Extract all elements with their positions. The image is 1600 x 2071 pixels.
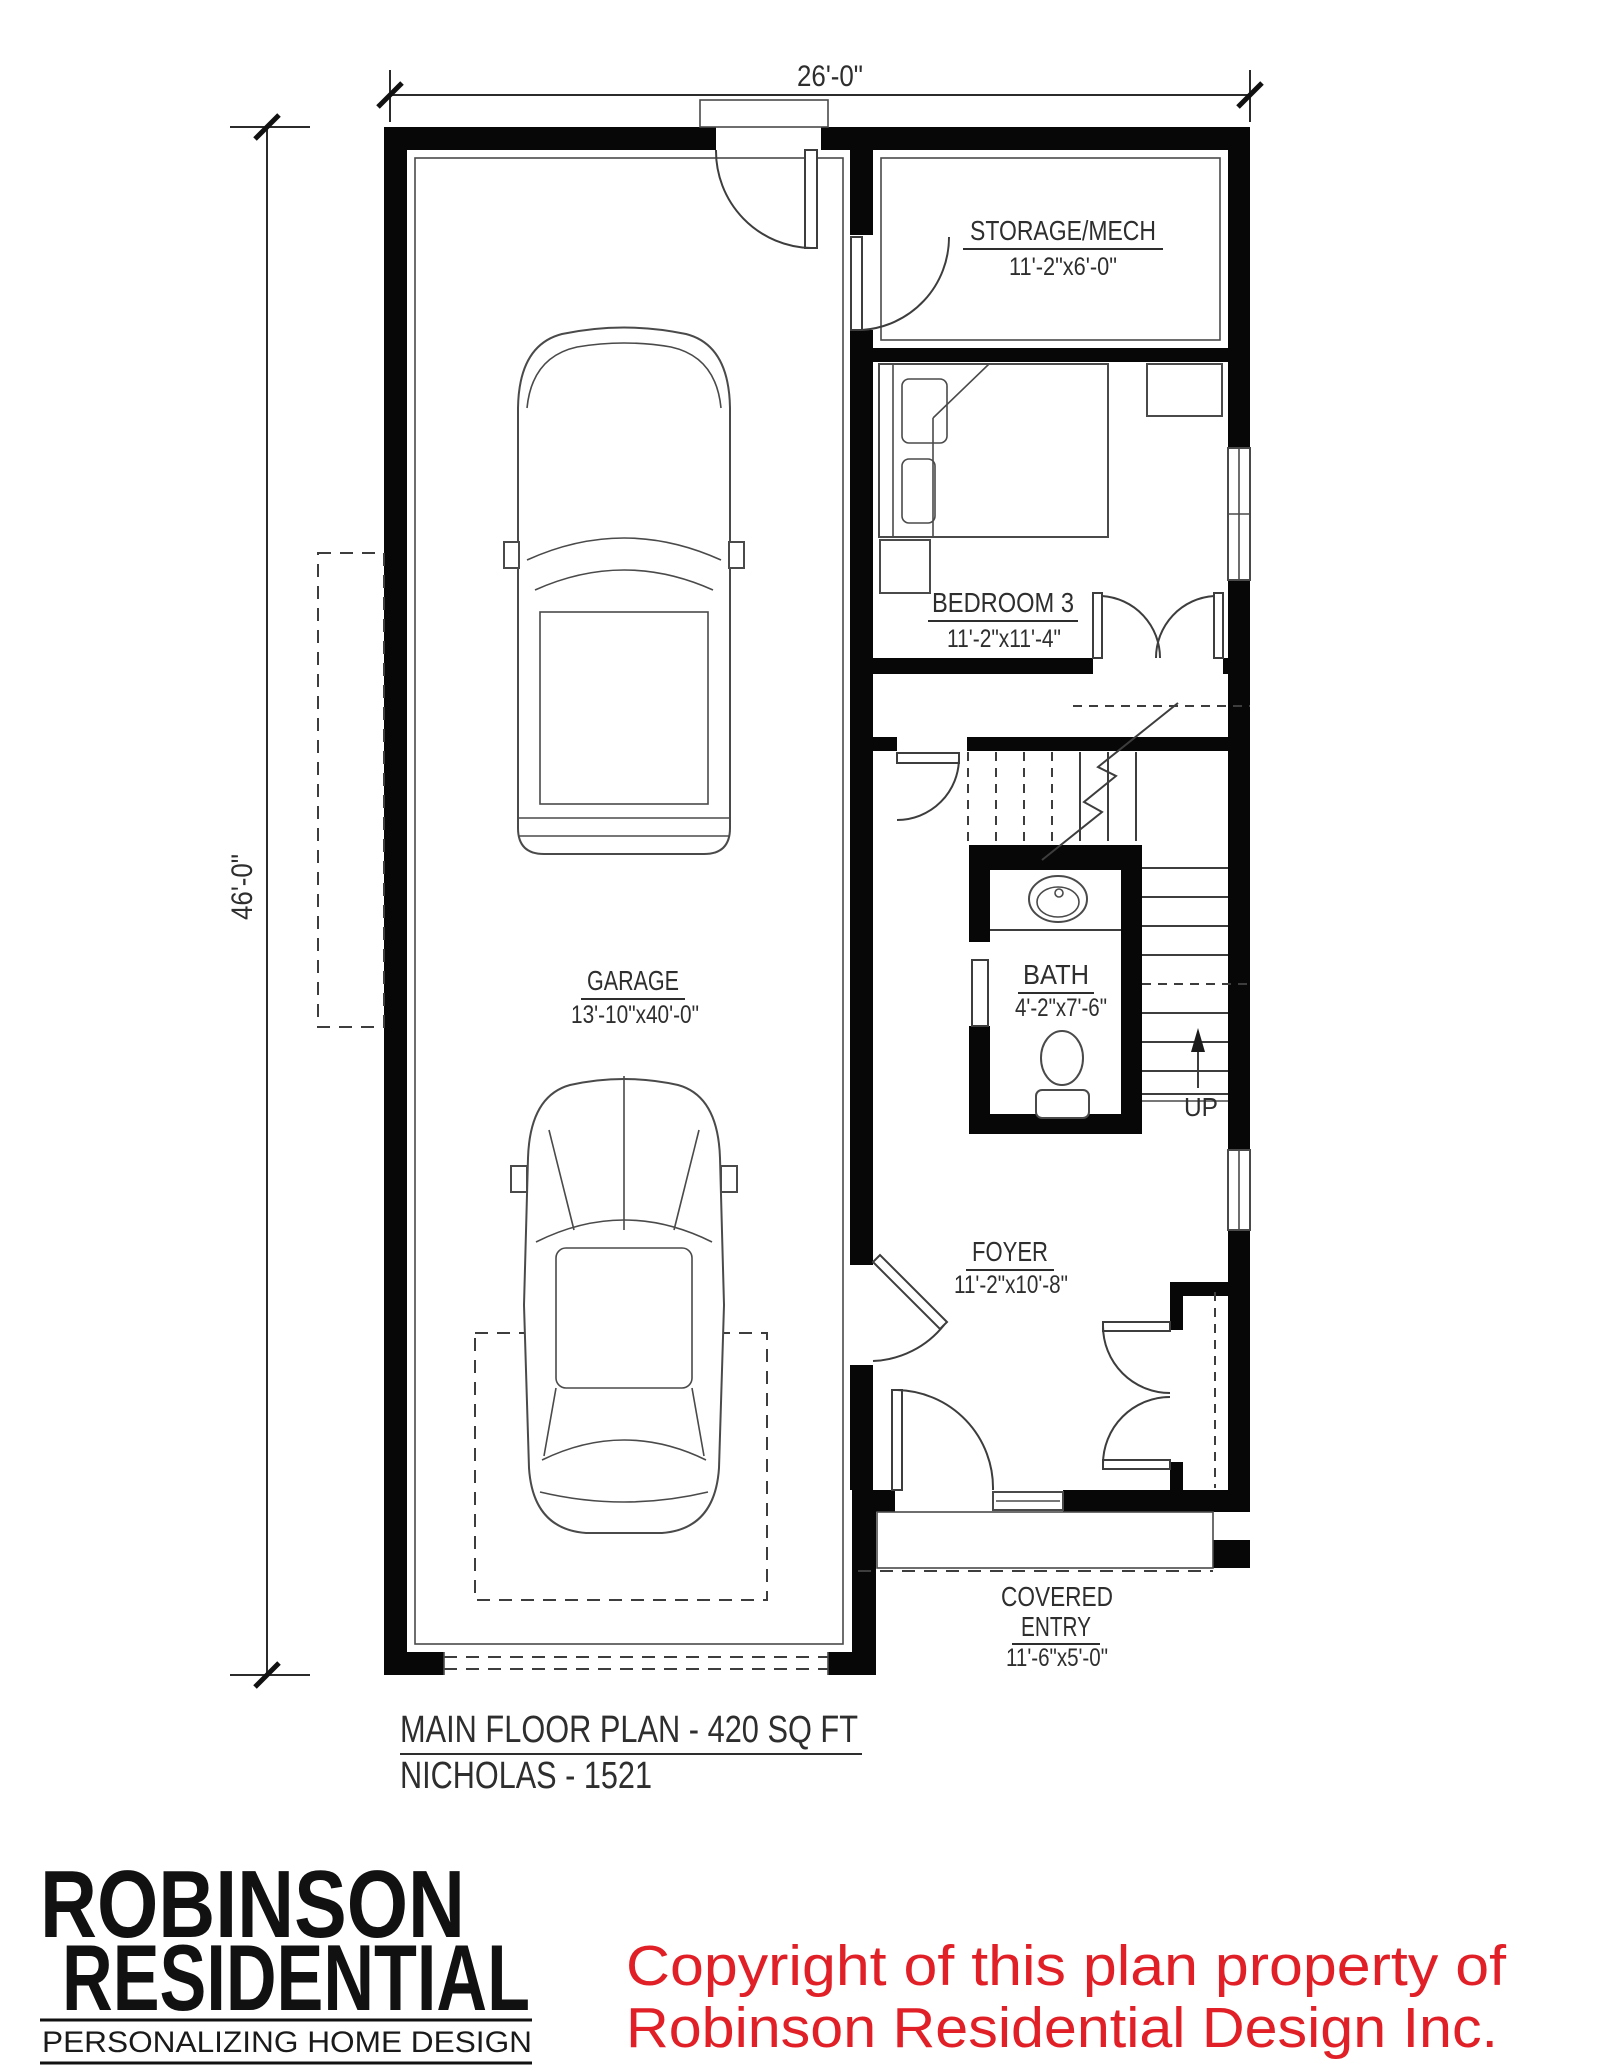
- storage-mech-size: 11'-2"x6'-0": [1009, 253, 1117, 281]
- left-dimension: 46'-0": [226, 115, 310, 1687]
- copyright-line1: Copyright of this plan property of: [626, 1934, 1506, 1998]
- door-swing-garage-rear: [716, 150, 811, 248]
- door-swing-bedroom-right: [1156, 596, 1214, 658]
- door-leaf-bedroom-right: [1214, 593, 1223, 658]
- rear-door-step: [700, 100, 828, 127]
- foyer-size: 11'-2"x10'-8": [954, 1271, 1068, 1299]
- wall-hall-north-a: [873, 737, 897, 751]
- floor-plan-drawing: 26'-0" 46'-0": [0, 0, 1600, 2071]
- wall-central-upper: [850, 150, 873, 235]
- truck-mirror: [504, 542, 519, 568]
- door-swing-front-entry: [897, 1390, 993, 1490]
- cantilever-dashed-outline: [318, 553, 384, 1027]
- stairs-up-label: UP: [1184, 1092, 1218, 1122]
- porch-slab-outline: [877, 1512, 1213, 1568]
- door-leaf-garage-rear: [805, 150, 817, 248]
- logo-line2: RESIDENTIAL: [62, 1925, 530, 2030]
- bath-label: BATH: [1023, 959, 1089, 990]
- plan-name: NICHOLAS - 1521: [400, 1755, 652, 1797]
- wall-storage-south: [873, 348, 1228, 362]
- copyright-line2: Robinson Residential Design Inc.: [626, 1996, 1498, 2060]
- door-swing-closet-bottom: [1103, 1397, 1170, 1464]
- wall-closet-stub-lower: [1170, 1462, 1183, 1490]
- wall-top-right: [821, 127, 1250, 150]
- bedroom-furniture: [879, 364, 1222, 593]
- wall-foyer-south-a: [852, 1490, 895, 1512]
- door-swing-hall: [897, 758, 959, 820]
- wall-right-upper: [1228, 127, 1250, 448]
- car-mirror: [721, 1166, 737, 1192]
- garage-label: GARAGE: [587, 965, 679, 996]
- wall-closet-stub-upper: [1170, 1287, 1183, 1330]
- door-leaf-closet-bottom: [1103, 1460, 1170, 1469]
- wall-central-middle: [850, 330, 873, 1265]
- left-dimension-label: 46'-0": [226, 854, 259, 920]
- wall-bath-east: [1121, 845, 1142, 1134]
- wall-right-lower: [1228, 1230, 1250, 1490]
- door-leaf-bath: [972, 960, 988, 1026]
- door-leaf-hall: [897, 753, 959, 763]
- door-leaf-front-entry: [892, 1390, 902, 1490]
- bed: [879, 364, 1108, 537]
- porch-corner-post: [1213, 1540, 1250, 1568]
- wall-left: [384, 127, 407, 1675]
- door-swing-storage: [862, 237, 949, 330]
- robinson-residential-logo: ROBINSON RESIDENTIAL PERSONALIZING HOME …: [40, 1851, 532, 2063]
- dresser: [1147, 364, 1222, 416]
- foyer-label: FOYER: [972, 1236, 1048, 1267]
- bath-size: 4'-2"x7'-6": [1015, 994, 1107, 1022]
- stair-break-line: [1042, 703, 1178, 860]
- truck-body: [518, 328, 730, 855]
- floor-plan-page: 26'-0" 46'-0": [0, 0, 1600, 2071]
- garage-size: 13'-10"x40'-0": [571, 1001, 699, 1029]
- covered-entry-label-line1: COVERED: [1001, 1581, 1113, 1612]
- wall-top-left: [384, 127, 716, 150]
- drawing-title: MAIN FLOOR PLAN - 420 SQ FT NICHOLAS - 1…: [400, 1709, 862, 1797]
- wall-hall-north-b: [967, 737, 1250, 751]
- car: [511, 1076, 737, 1533]
- bedroom3-size: 11'-2"x11'-4": [947, 625, 1061, 653]
- truck-mirror: [729, 542, 744, 568]
- car-mirror: [511, 1166, 527, 1192]
- logo-tagline: PERSONALIZING HOME DESIGN: [42, 2026, 532, 2059]
- door-leaf-closet-top: [1103, 1322, 1170, 1331]
- foyer-elements: [858, 1292, 1215, 1571]
- truck: [504, 328, 744, 855]
- wall-foyer-south-b: [1063, 1490, 1250, 1512]
- top-dimension: 26'-0": [378, 60, 1262, 122]
- door-leaf-storage: [851, 237, 862, 330]
- door-swing-closet-top: [1103, 1326, 1170, 1393]
- door-leaf-bedroom-left: [1093, 593, 1102, 658]
- wall-garage-bottom-left: [384, 1652, 444, 1675]
- plan-title: MAIN FLOOR PLAN - 420 SQ FT: [400, 1709, 858, 1751]
- bedroom3-label: BEDROOM 3: [932, 587, 1074, 618]
- door-leaf-foyer-garage: [873, 1255, 947, 1329]
- door-swing-bedroom-left: [1102, 596, 1160, 658]
- wall-porch-left: [852, 1503, 876, 1675]
- toilet-tank: [1036, 1090, 1089, 1118]
- walls: [384, 127, 1250, 1675]
- covered-entry-size: 11'-6"x5'-0": [1006, 1644, 1108, 1672]
- staircase: UP: [968, 703, 1250, 1122]
- toilet-bowl: [1041, 1031, 1083, 1085]
- nightstand: [880, 540, 930, 593]
- up-arrow-head: [1191, 1028, 1205, 1052]
- wall-bedroom-south-b: [1223, 658, 1250, 674]
- top-dimension-label: 26'-0": [797, 60, 863, 93]
- wall-bedroom-south-a: [850, 658, 1093, 674]
- storage-mech-label: STORAGE/MECH: [970, 215, 1156, 246]
- copyright-notice: Copyright of this plan property of Robin…: [626, 1934, 1506, 2060]
- door-swing-foyer-garage: [873, 1325, 944, 1361]
- covered-entry-label-line2: ENTRY: [1021, 1611, 1091, 1642]
- wall-central-lower: [850, 1365, 873, 1490]
